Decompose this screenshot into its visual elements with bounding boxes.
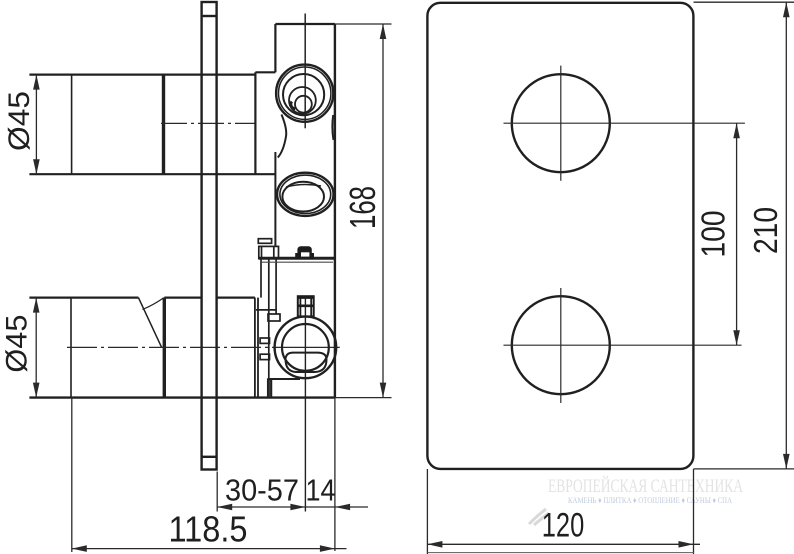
svg-text:100: 100	[695, 211, 732, 258]
svg-text:КАМЕНЬ ♦ ПЛИТКА ♦ ОТОПЛЕНИЕ ♦: КАМЕНЬ ♦ ПЛИТКА ♦ ОТОПЛЕНИЕ ♦ САУНЫ ♦ СП…	[568, 495, 733, 505]
svg-text:14: 14	[306, 473, 336, 508]
svg-text:30-57: 30-57	[225, 473, 299, 508]
svg-text:120: 120	[542, 507, 585, 545]
svg-text:ЕВРОПЕЙСКАЯ САНТЕХНИКА: ЕВРОПЕЙСКАЯ САНТЕХНИКА	[548, 476, 743, 497]
svg-text:Ø45: Ø45	[1, 315, 34, 373]
svg-text:Ø45: Ø45	[3, 91, 36, 151]
svg-text:210: 210	[747, 207, 784, 254]
svg-text:168: 168	[342, 186, 383, 229]
svg-text:118.5: 118.5	[169, 509, 248, 550]
